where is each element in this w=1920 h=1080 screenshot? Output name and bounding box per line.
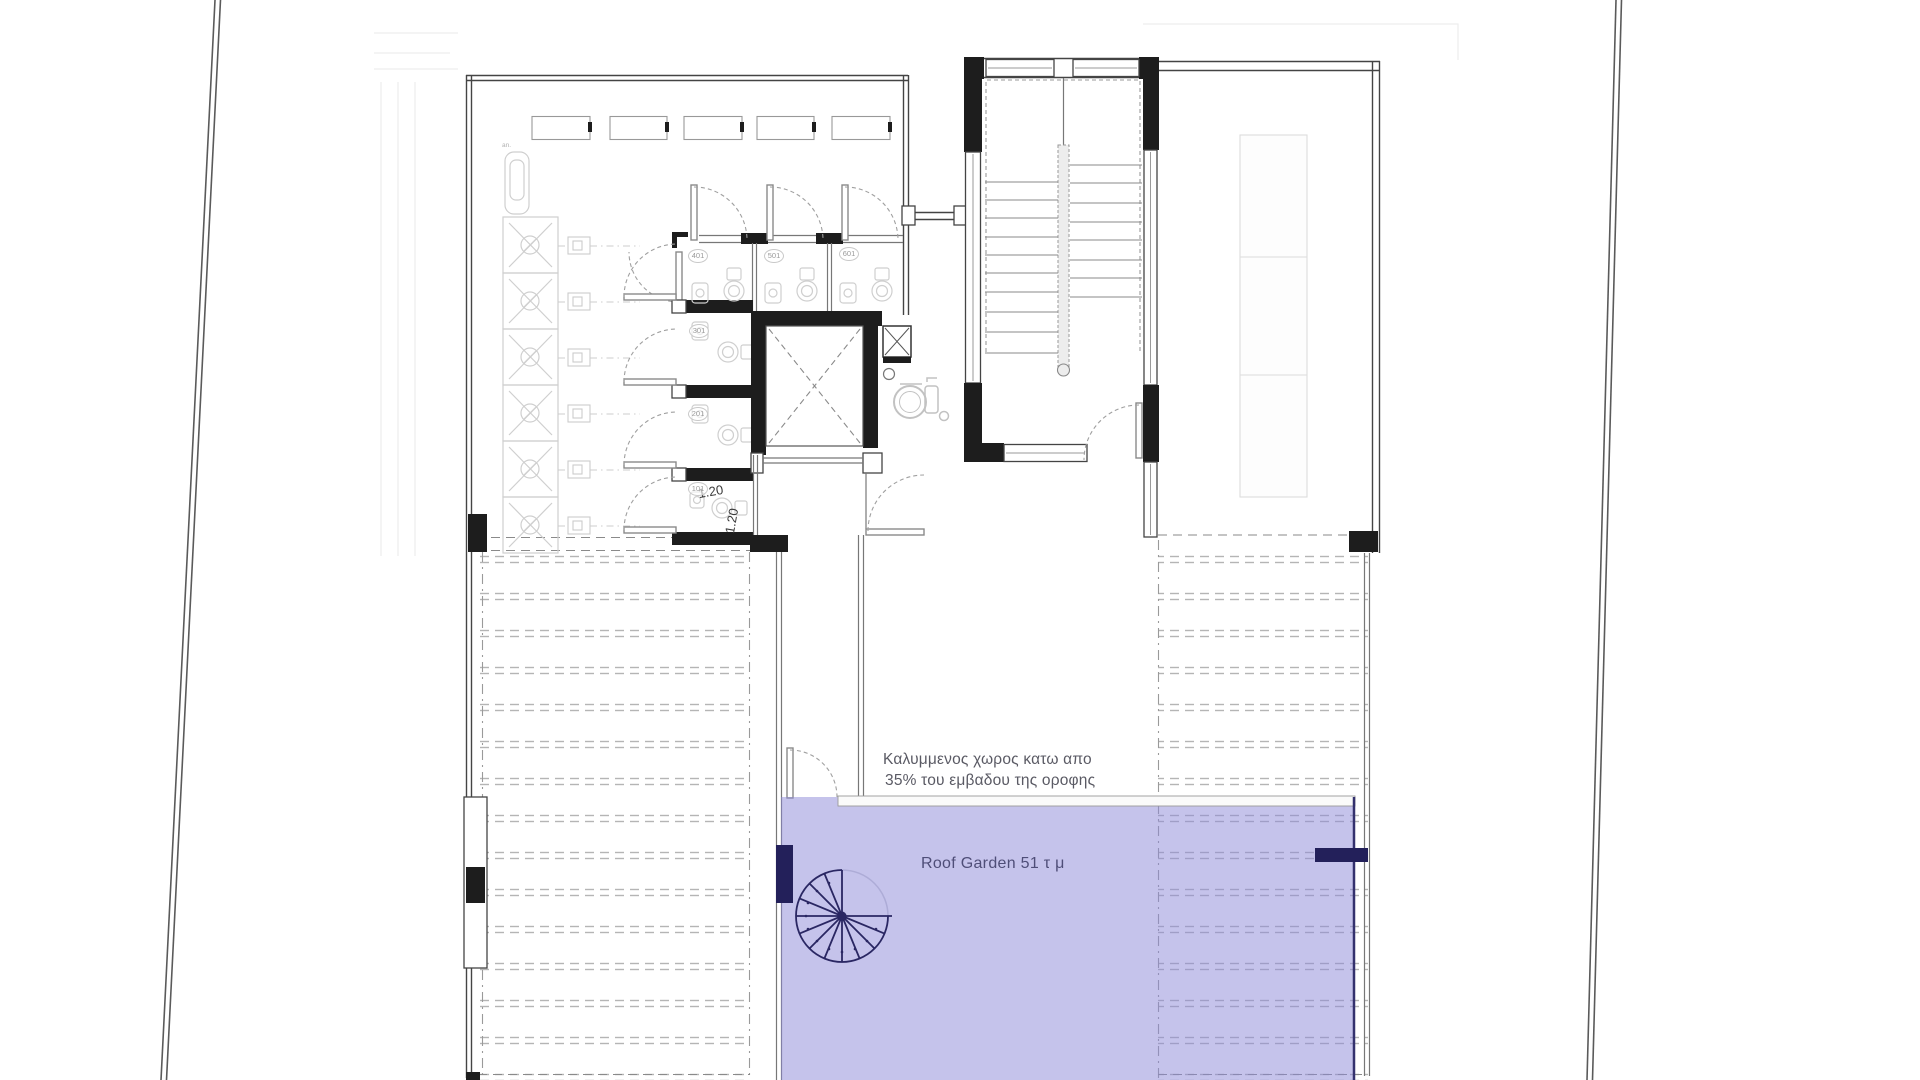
covered-space-note-line2: 35% του εμβαδου της οροφης [885,772,1095,790]
roof-garden-area [776,796,1368,1080]
solar-panel-icon [503,441,558,497]
wc-label-401: 401 [688,249,708,263]
door-icon [767,185,823,240]
door-icon [691,185,747,240]
floor-plan-canvas: Καλυμμενος χωρος κατω απο 35% του εμβαδο… [0,0,1920,1080]
wc-label-301: 301 [689,324,709,338]
toilet-icon [840,268,892,303]
wc-label-601: 601 [839,247,859,261]
solar-panel-icon [503,273,558,329]
skylight [1240,135,1307,497]
door-icon [624,477,677,533]
solar-panel-icon [503,329,558,385]
solar-panel-icon [503,217,558,273]
elevator-shaft [751,311,882,473]
right-room [1158,61,1380,553]
door-icon [842,185,898,240]
door-icon [624,412,677,468]
wc-label-101: 101 [688,482,708,496]
stair-treads-left [985,182,1058,353]
solar-panel-icon [503,385,558,441]
roof-garden-label: Roof Garden 51 τ μ [921,855,1065,873]
door-icon [624,244,677,300]
solar-panel-column [503,217,558,553]
stair-treads-right [1070,165,1142,297]
covered-space-note-line1: Καλυμμενος χωρος κατω απο [883,751,1092,769]
wc-label-201: 201 [688,407,708,421]
toilet-icon [765,268,817,303]
wc-label-501: 501 [764,249,784,263]
roof-opening-row [532,117,892,140]
door-icon [624,329,677,385]
solar-panel-icon [503,497,558,553]
tank-label: an. [502,142,511,149]
wheelchair-icon [894,378,949,421]
site-boundary-right [1587,0,1622,1080]
water-tank-icon [505,152,529,214]
link-wall [902,206,966,225]
site-boundary-left [161,0,221,1080]
door-icon [787,748,837,798]
door-icon [866,475,924,535]
toilet-icon [692,268,744,303]
service-shaft [883,326,911,380]
staircase-core [964,57,1159,537]
roof-hatch-left [478,552,750,1080]
floor-plan-drawing [0,0,1920,1080]
door-icon [1084,403,1142,460]
